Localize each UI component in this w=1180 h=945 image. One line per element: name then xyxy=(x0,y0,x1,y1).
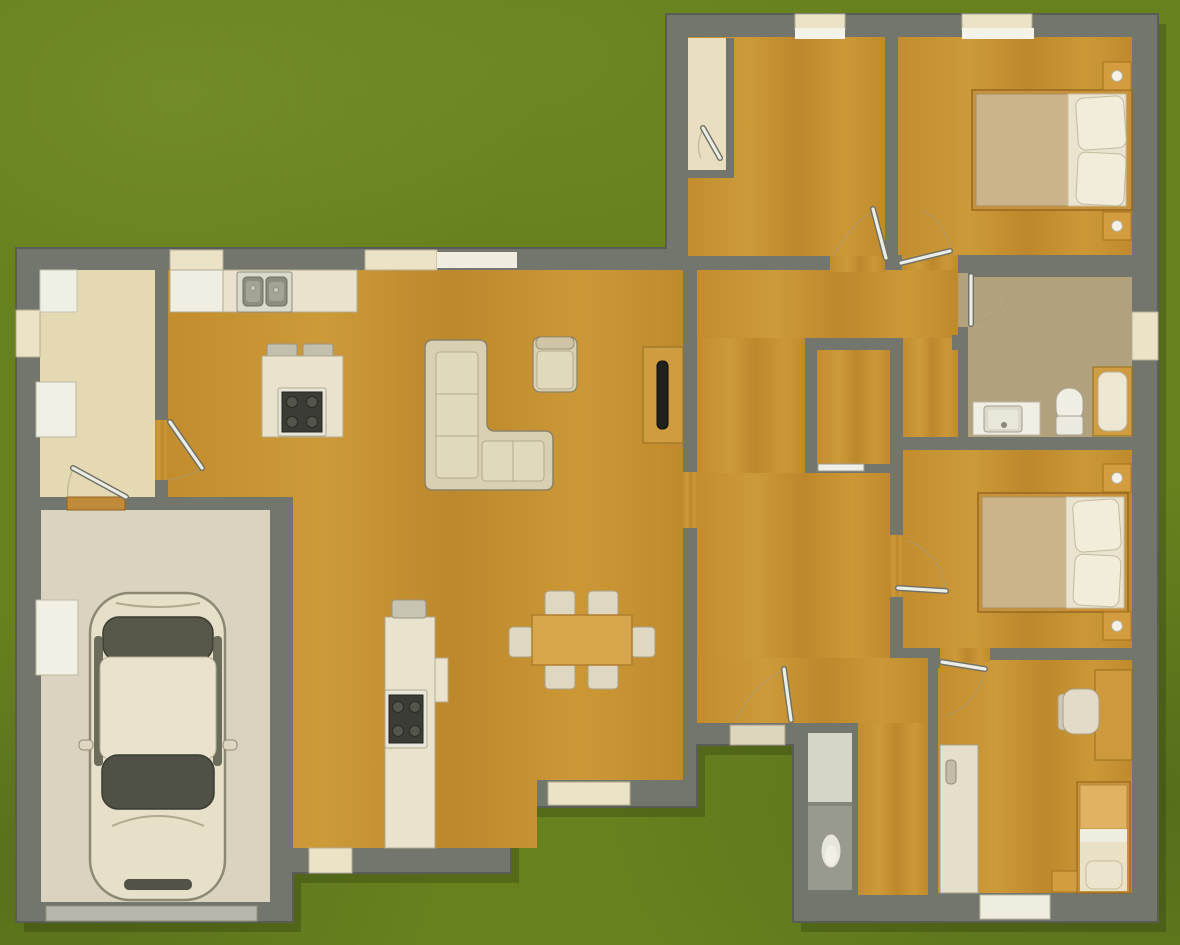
island-burner-2 xyxy=(307,397,318,408)
bedroom3-bed-blanket xyxy=(1080,785,1127,829)
window-living-bottom xyxy=(548,782,630,805)
wc-shower-floor xyxy=(808,733,852,805)
bedroom3-bed-band xyxy=(1080,829,1127,842)
peninsula-burner-1 xyxy=(393,702,404,713)
hall-bottom-floor xyxy=(697,658,928,723)
car-mirror-left xyxy=(79,740,93,750)
dining-chair-1 xyxy=(545,591,575,617)
master-pillow-2 xyxy=(1076,152,1127,206)
garage-window-left xyxy=(36,600,78,675)
car-rear-window xyxy=(103,617,213,661)
bedroom2-pillow-1 xyxy=(1072,498,1121,552)
walkin-closet-floor xyxy=(817,350,890,464)
wc-toilet-inner xyxy=(825,845,837,865)
dining-chair-4 xyxy=(588,663,618,689)
peninsula-burner-4 xyxy=(410,726,421,737)
tv-screen xyxy=(657,361,668,429)
armchair-back xyxy=(536,337,574,349)
window-study xyxy=(795,14,845,30)
bedroom2-bed-blanket xyxy=(982,497,1066,608)
island-stool-left xyxy=(267,344,297,357)
sofa-seat-left xyxy=(436,352,478,478)
armchair-seat xyxy=(537,351,573,389)
opening-living-hall xyxy=(683,472,697,528)
bathroom-sink-drain xyxy=(1001,422,1007,428)
bathroom-wall-bump xyxy=(952,335,968,350)
sink-basin-left-inner xyxy=(246,281,260,302)
window-kitchen-left xyxy=(170,250,223,270)
study-closet-wall-right xyxy=(726,38,734,178)
entry-cabinet xyxy=(40,270,77,312)
hall-nub-floor xyxy=(903,338,958,437)
bedroom3-pillow xyxy=(1086,861,1122,889)
master-nightstand-1-lamp xyxy=(1112,71,1123,82)
window-master-sill xyxy=(962,28,1034,39)
master-nightstand-2-lamp xyxy=(1112,221,1123,232)
opening-study-door xyxy=(830,256,885,272)
peninsula-burner-3 xyxy=(393,726,404,737)
back-door-threshold xyxy=(730,725,785,745)
window-bathroom-right xyxy=(1132,312,1158,360)
bedroom2-nightstand-1-lamp xyxy=(1112,473,1123,484)
window-bedroom3-bottom xyxy=(980,895,1050,919)
island-burner-4 xyxy=(307,417,318,428)
bedroom3-nightstand xyxy=(1052,871,1077,892)
car-windshield xyxy=(102,755,214,809)
bathtub-inner xyxy=(1098,372,1127,431)
window-entry-left xyxy=(16,310,40,357)
entry-front-door xyxy=(36,382,76,437)
bedroom2-pillow-2 xyxy=(1073,554,1122,607)
dining-chair-6 xyxy=(631,627,655,657)
study-closet-floor xyxy=(688,38,726,170)
window-master xyxy=(962,14,1032,30)
bedroom3-desk xyxy=(1095,670,1132,760)
hall-upper-floor xyxy=(697,270,958,338)
opening-entry-kitchen xyxy=(155,420,168,480)
wc-divider xyxy=(808,802,852,806)
master-pillow-1 xyxy=(1075,95,1127,150)
vestibule-floor xyxy=(858,723,928,895)
dining-chair-3 xyxy=(545,663,575,689)
island-burner-1 xyxy=(287,397,298,408)
dining-table xyxy=(532,615,632,665)
hall-lower-floor xyxy=(697,473,890,658)
window-kitchen-right xyxy=(365,250,437,270)
master-bed-blanket xyxy=(976,94,1068,206)
closet-sliding-door xyxy=(818,464,864,471)
bedroom3-wall-bump xyxy=(928,658,940,668)
bedroom3-desk-chair xyxy=(1063,689,1099,734)
peninsula-handle xyxy=(392,600,426,618)
peninsula-burner-2 xyxy=(410,702,421,713)
island-burner-3 xyxy=(287,417,298,428)
opening-bathroom-door xyxy=(958,273,968,327)
peninsula-shelf xyxy=(435,658,448,702)
dining-chair-2 xyxy=(588,591,618,617)
toilet-base xyxy=(1056,416,1083,435)
island-stool-right xyxy=(303,344,333,357)
sink-faucet-right xyxy=(274,288,279,293)
study-closet-wall-bottom xyxy=(688,170,734,178)
car-grill xyxy=(124,879,192,890)
bedroom2-nightstand-2-lamp xyxy=(1112,621,1123,632)
window-study-sill xyxy=(795,28,845,39)
bedroom3-wardrobe-handle xyxy=(946,760,956,784)
car-mirror-right xyxy=(223,740,237,750)
window-living-top-sill xyxy=(437,252,517,268)
dining-chair-5 xyxy=(509,627,533,657)
floor-plan-svg xyxy=(0,0,1180,945)
car-roof xyxy=(100,657,216,759)
sink-faucet-left xyxy=(251,286,256,291)
garage-door xyxy=(46,906,257,921)
garage-entry-door xyxy=(67,497,125,510)
hall-left-floor xyxy=(697,338,805,473)
window-living-bottom-left xyxy=(309,848,352,873)
floor-plan-canvas xyxy=(0,0,1180,945)
kitchen-fridge xyxy=(170,270,223,312)
